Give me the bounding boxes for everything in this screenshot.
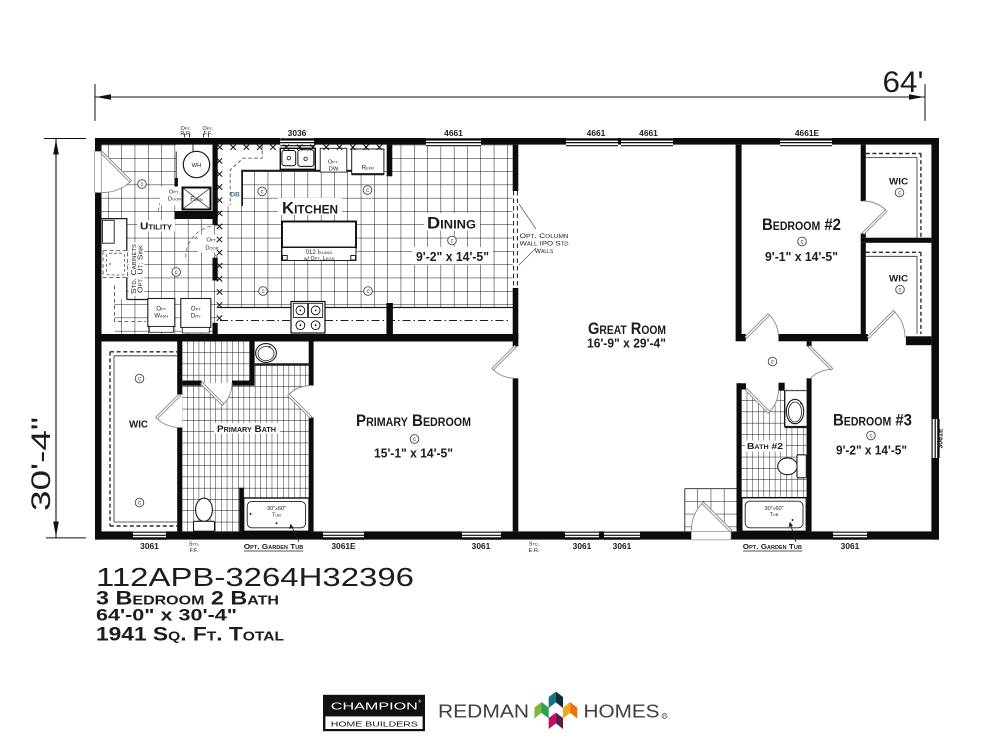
svg-text:Std.: Std. <box>529 542 540 548</box>
svg-text:64'-0" x 30'-4": 64'-0" x 30'-4" <box>96 606 237 625</box>
svg-text:Door: Door <box>205 246 218 252</box>
svg-text:c: c <box>800 239 803 246</box>
svg-text:DW: DW <box>329 166 339 172</box>
svg-text:WIC: WIC <box>129 419 148 431</box>
svg-text:15'-1" x 14'-5": 15'-1" x 14'-5" <box>374 447 453 461</box>
svg-text:HOMES: HOMES <box>584 701 660 722</box>
svg-text:Bath #2: Bath #2 <box>747 441 783 451</box>
svg-text:Wash: Wash <box>154 314 168 320</box>
svg-text:4661: 4661 <box>639 128 658 138</box>
svg-text:Opt. Garden Tub: Opt. Garden Tub <box>743 542 802 551</box>
svg-text:c: c <box>140 181 143 188</box>
svg-text:3061: 3061 <box>140 541 159 551</box>
svg-text:Primary Bedroom: Primary Bedroom <box>356 411 471 430</box>
svg-text:Great Room: Great Room <box>588 319 666 338</box>
svg-text:c: c <box>175 269 178 276</box>
svg-text:c: c <box>771 359 774 366</box>
svg-text:Opt.: Opt. <box>169 190 181 196</box>
svg-text:Dry: Dry <box>191 314 201 320</box>
svg-text:4661E: 4661E <box>795 128 820 138</box>
svg-text:3061: 3061 <box>613 541 632 551</box>
svg-text:30'-4": 30'-4" <box>26 417 56 511</box>
svg-text:3061E: 3061E <box>938 428 945 449</box>
svg-text:REDMAN: REDMAN <box>438 701 529 722</box>
svg-text:c: c <box>366 288 369 295</box>
svg-text:HOME BUILDERS: HOME BUILDERS <box>331 719 418 728</box>
svg-text:30"x60": 30"x60" <box>267 506 286 512</box>
svg-text:DB: DB <box>230 192 240 199</box>
svg-text:3036: 3036 <box>288 128 307 138</box>
svg-text:3061: 3061 <box>472 541 491 551</box>
svg-text:Kitchen: Kitchen <box>282 199 338 218</box>
svg-text:Opt: Opt <box>156 307 166 313</box>
svg-text:4661: 4661 <box>444 128 463 138</box>
svg-text:Refr: Refr <box>362 165 375 172</box>
svg-text:Opt: Opt <box>191 307 201 313</box>
svg-text:Opt. Ut. Sink: Opt. Ut. Sink <box>135 244 144 293</box>
svg-text:112APB-3264H32396: 112APB-3264H32396 <box>96 562 414 592</box>
svg-text:Tub: Tub <box>770 512 779 518</box>
svg-text:Opt. Garden Tub: Opt. Garden Tub <box>244 542 304 551</box>
svg-text:F.F.: F.F. <box>190 548 199 554</box>
svg-text:c: c <box>138 500 141 507</box>
svg-text:c: c <box>869 433 872 440</box>
svg-text:Primary Bath: Primary Bath <box>217 424 276 435</box>
svg-text:WIC: WIC <box>889 177 908 188</box>
svg-text:Door: Door <box>168 197 181 203</box>
svg-text:c: c <box>261 189 264 196</box>
svg-text:Dining: Dining <box>427 214 476 233</box>
svg-text:E.R.: E.R. <box>529 548 540 554</box>
svg-text:c: c <box>261 288 264 295</box>
svg-text:Opt.: Opt. <box>328 160 340 166</box>
svg-text:w/ Opt. Legs: w/ Opt. Legs <box>304 256 335 262</box>
svg-text:c: c <box>138 376 141 383</box>
svg-text:9'-2" x 14'-5": 9'-2" x 14'-5" <box>416 250 489 264</box>
svg-text:9'-2" x 14'-5": 9'-2" x 14'-5" <box>836 444 907 458</box>
svg-text:3061E: 3061E <box>331 541 356 551</box>
svg-text:16'-9" x 29'-4": 16'-9" x 29'-4" <box>587 337 666 351</box>
svg-text:c: c <box>898 190 901 197</box>
svg-text:R: R <box>663 714 666 719</box>
svg-text:Tub: Tub <box>272 513 281 519</box>
svg-text:4661: 4661 <box>587 128 606 138</box>
svg-text:WIC: WIC <box>889 274 908 285</box>
svg-text:3061: 3061 <box>841 541 860 551</box>
svg-text:3061: 3061 <box>573 541 592 551</box>
svg-text:c: c <box>898 287 901 294</box>
svg-text:9'-1" x 14'-5": 9'-1" x 14'-5" <box>765 250 838 264</box>
svg-text:Opt.: Opt. <box>206 238 218 244</box>
svg-text:Utility: Utility <box>140 221 172 233</box>
svg-text:WH: WH <box>192 163 202 169</box>
svg-text:R.R.: R.R. <box>180 131 192 137</box>
svg-text:CHAMPION: CHAMPION <box>331 702 418 713</box>
svg-text:30"x60": 30"x60" <box>764 506 783 512</box>
svg-text:Bedroom #3: Bedroom #3 <box>833 411 912 430</box>
svg-text:64': 64' <box>883 66 924 99</box>
svg-text:c: c <box>450 238 453 245</box>
svg-text:c: c <box>366 187 369 194</box>
svg-text:Opt. Column: Opt. Column <box>520 233 569 240</box>
svg-text:1941 Sq. Ft. Total: 1941 Sq. Ft. Total <box>96 625 284 646</box>
svg-text:Furn: Furn <box>190 196 203 203</box>
svg-text:Walls: Walls <box>535 248 554 255</box>
svg-text:c: c <box>413 436 416 443</box>
svg-text:Std.: Std. <box>189 542 200 548</box>
svg-text:Bedroom #2: Bedroom #2 <box>762 215 841 234</box>
svg-text:Wall IPO Std: Wall IPO Std <box>520 241 569 248</box>
